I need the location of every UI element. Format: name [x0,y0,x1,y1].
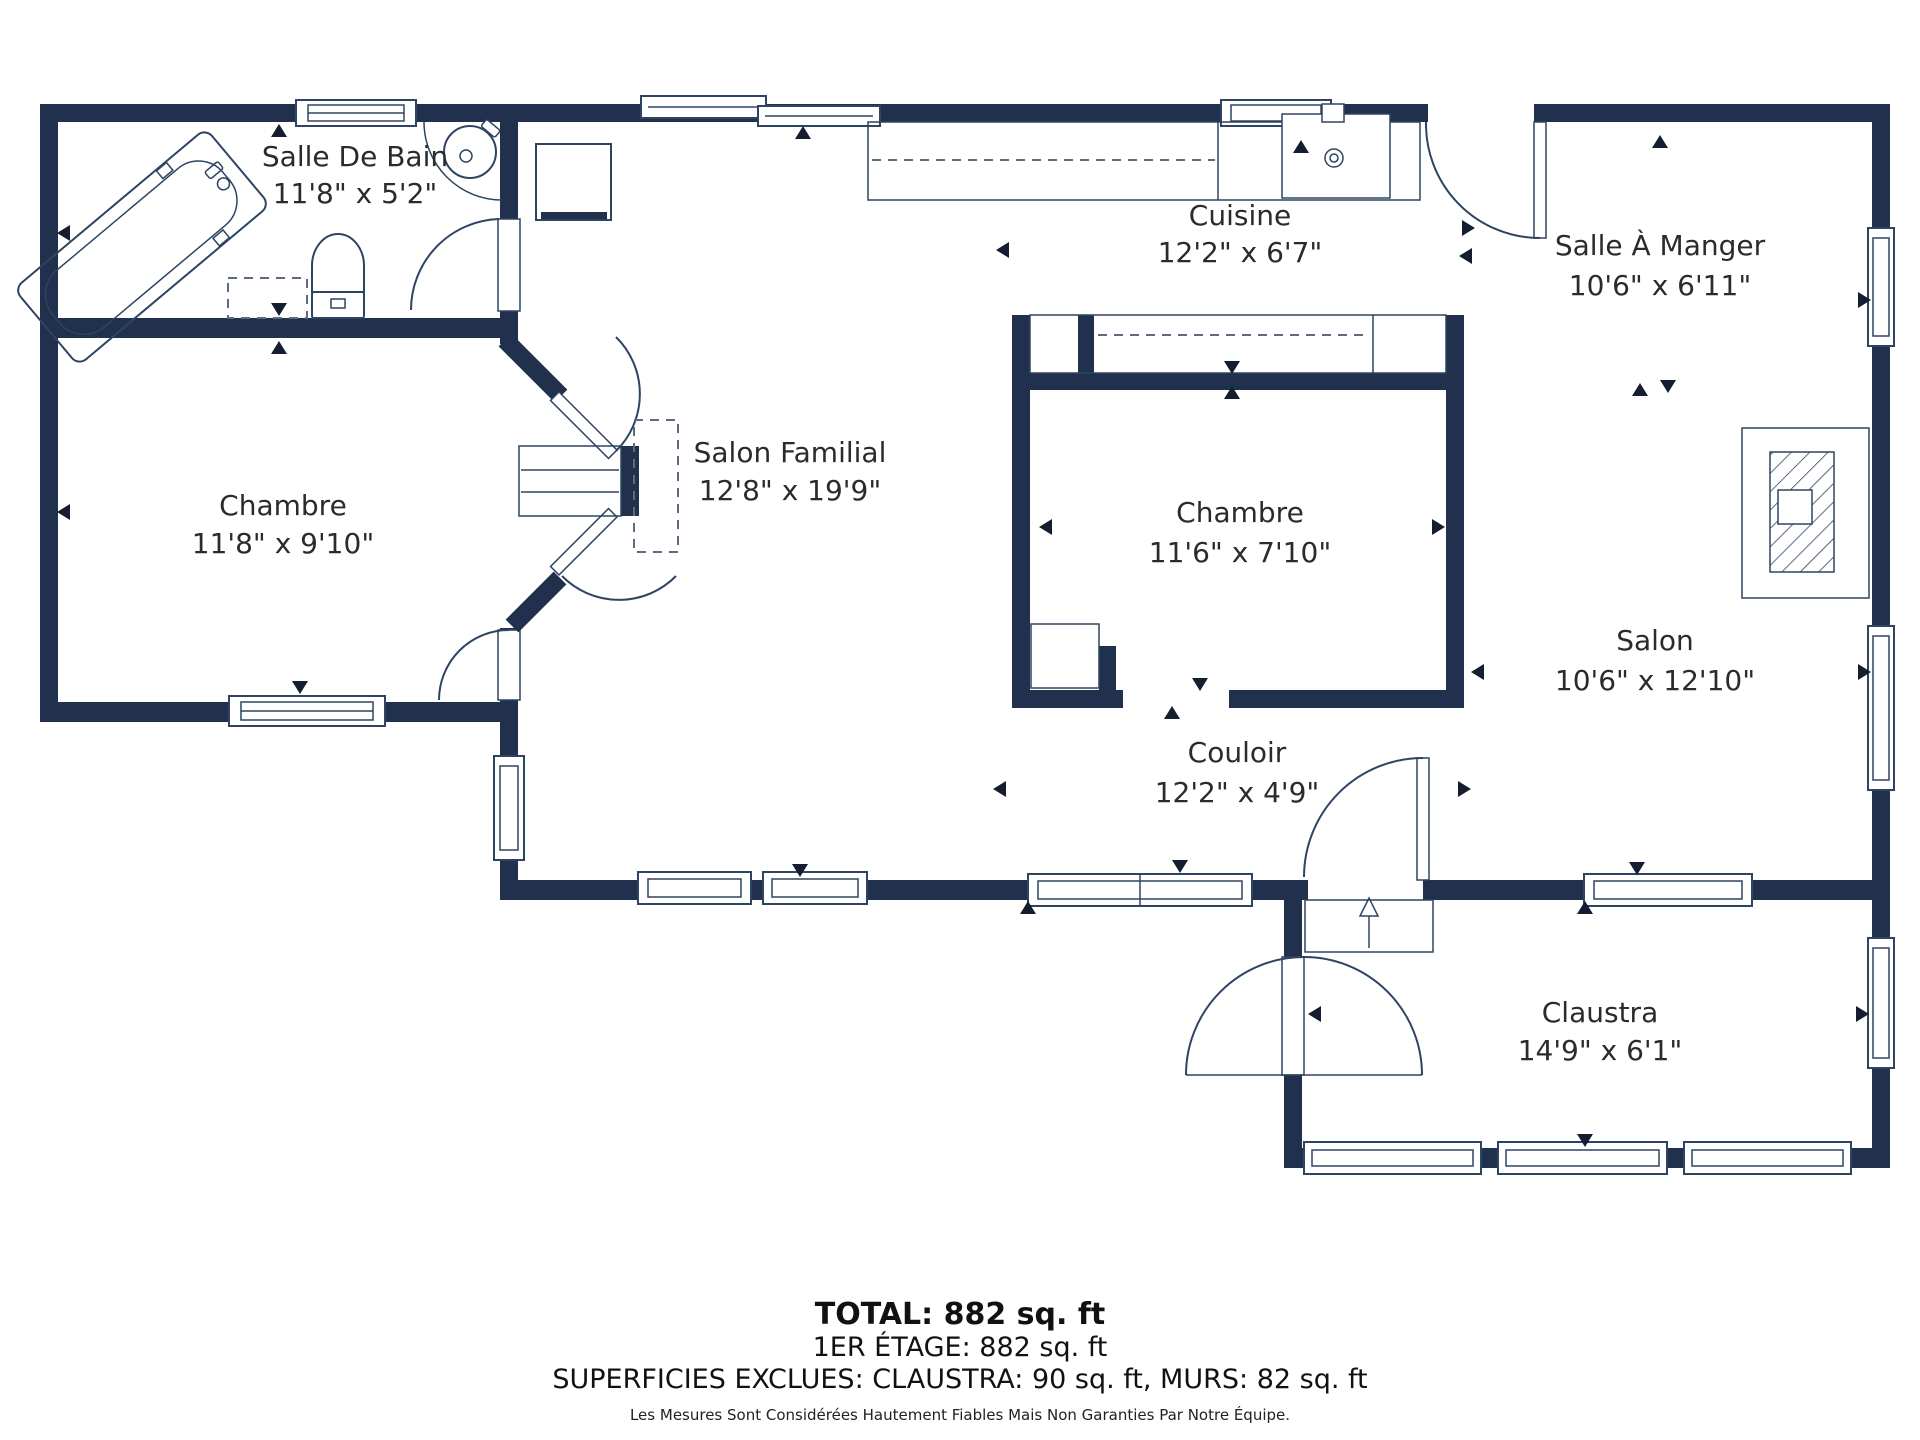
marker-icon [1224,361,1240,374]
closet-door-icon [512,509,676,626]
door-swing-icon [411,219,520,311]
double-swing-door-icon [1186,957,1422,1075]
room-name: Salon Familial [694,436,887,469]
entrance-opening [1308,878,1423,902]
disclaimer: Les Mesures Sont Considérées Hautement F… [0,1406,1920,1424]
floor-area: 1ER ÉTAGE: 882 sq. ft [0,1332,1920,1364]
door-swing-icon [1426,122,1546,238]
marker-icon [1632,383,1648,396]
marker-icon [1432,519,1445,535]
window-icon [1868,938,1894,1068]
marker-icon [1660,380,1676,393]
marker-icon [57,504,70,520]
dining-door-opening [1428,102,1534,124]
wall-chamber-niche-stub [1099,646,1116,690]
room-dimensions: 11'8" x 9'10" [192,527,374,560]
wall-chamber-bottom [1012,690,1464,708]
wall-bay-corner [621,446,639,516]
room-name: Salle À Manger [1555,228,1766,262]
room-labels: Salle De Bain 11'8" x 5'2" Chambre 11'8"… [192,140,1766,1067]
entrance-step [1305,898,1433,952]
room-name: Couloir [1188,736,1287,769]
room-label-salon: Salon 10'6" x 12'10" [1555,624,1755,697]
bay-opening [496,344,522,628]
wall-chamber-top [1012,373,1464,390]
chamber-door-opening [1123,688,1229,710]
window-icon [494,756,524,860]
window-icon [1584,874,1752,906]
marker-icon [1652,135,1668,148]
closet-door-icon [505,337,640,458]
marker-icon [1458,781,1471,797]
marker-icon [1308,1006,1321,1022]
wall-left [40,104,58,722]
toilet-icon [312,234,364,318]
room-dimensions: 11'8" x 5'2" [273,177,438,210]
floor-plan-canvas: Salle De Bain 11'8" x 5'2" Chambre 11'8"… [0,0,1920,1440]
room-dimensions: 10'6" x 12'10" [1555,664,1755,697]
room-dimensions: 14'9" x 6'1" [1518,1034,1683,1067]
marker-icon [1172,860,1188,873]
marker-icon [271,303,287,316]
marker-icon [1462,220,1475,236]
wardrobe-dashed-icon [634,420,678,552]
water-heater-icon [536,144,611,220]
screen-panel-icon [1304,1142,1851,1174]
room-name: Chambre [1176,496,1304,529]
marker-icon [292,681,308,694]
room-label-chambre-centre: Chambre 11'6" x 7'10" [1149,496,1331,569]
cabinet-dashed-icon [228,278,307,318]
doors [411,122,1546,1075]
fireplace-icon [1742,428,1869,598]
marker-icon [1039,519,1052,535]
marker-icon [993,781,1006,797]
window-icon [1028,874,1252,906]
room-label-cuisine: Cuisine 12'2" x 6'7" [1158,199,1323,269]
window-icon [1868,626,1894,790]
floor-plan-page: Salle De Bain 11'8" x 5'2" Chambre 11'8"… [0,0,1920,1440]
window-icon [229,696,385,726]
room-label-couloir: Couloir 12'2" x 4'9" [1155,736,1320,809]
room-name: Salon [1616,624,1694,657]
room-dimensions: 11'6" x 7'10" [1149,536,1331,569]
room-dimensions: 10'6" x 6'11" [1569,269,1751,302]
marker-icon [271,341,287,354]
chamber-niche [1031,624,1099,688]
door-swing-icon [439,630,520,700]
room-name: Cuisine [1189,199,1291,232]
room-dimensions: 12'2" x 4'9" [1155,776,1320,809]
room-name: Salle De Bain [262,140,448,173]
total-area: TOTAL: 882 sq. ft [0,1298,1920,1332]
area-summary: TOTAL: 882 sq. ft 1ER ÉTAGE: 882 sq. ft … [0,1298,1920,1424]
room-name: Chambre [219,489,347,522]
room-dimensions: 12'2" x 6'7" [1158,236,1323,269]
marker-icon [1459,248,1472,264]
window-icon [296,100,416,126]
room-label-salle-de-bain: Salle De Bain 11'8" x 5'2" [262,140,448,210]
room-label-salon-familial: Salon Familial 12'8" x 19'9" [694,436,887,507]
marker-icon [271,124,287,137]
window-icon [1868,228,1894,346]
room-label-claustra: Claustra 14'9" x 6'1" [1518,996,1683,1067]
room-label-chambre-ouest: Chambre 11'8" x 9'10" [192,489,374,560]
marker-icon [795,126,811,139]
room-label-salle-a-manger: Salle À Manger 10'6" x 6'11" [1555,228,1766,302]
marker-icon [996,242,1009,258]
room-name: Claustra [1542,996,1658,1029]
excluded-areas: SUPERFICIES EXCLUES: CLAUSTRA: 90 sq. ft… [0,1364,1920,1396]
room-dimensions: 12'8" x 19'9" [699,474,881,507]
door-swing-icon [1304,758,1429,880]
wall-pantry-stub [1078,315,1094,373]
marker-icon [1471,664,1484,680]
marker-icon [57,225,70,241]
